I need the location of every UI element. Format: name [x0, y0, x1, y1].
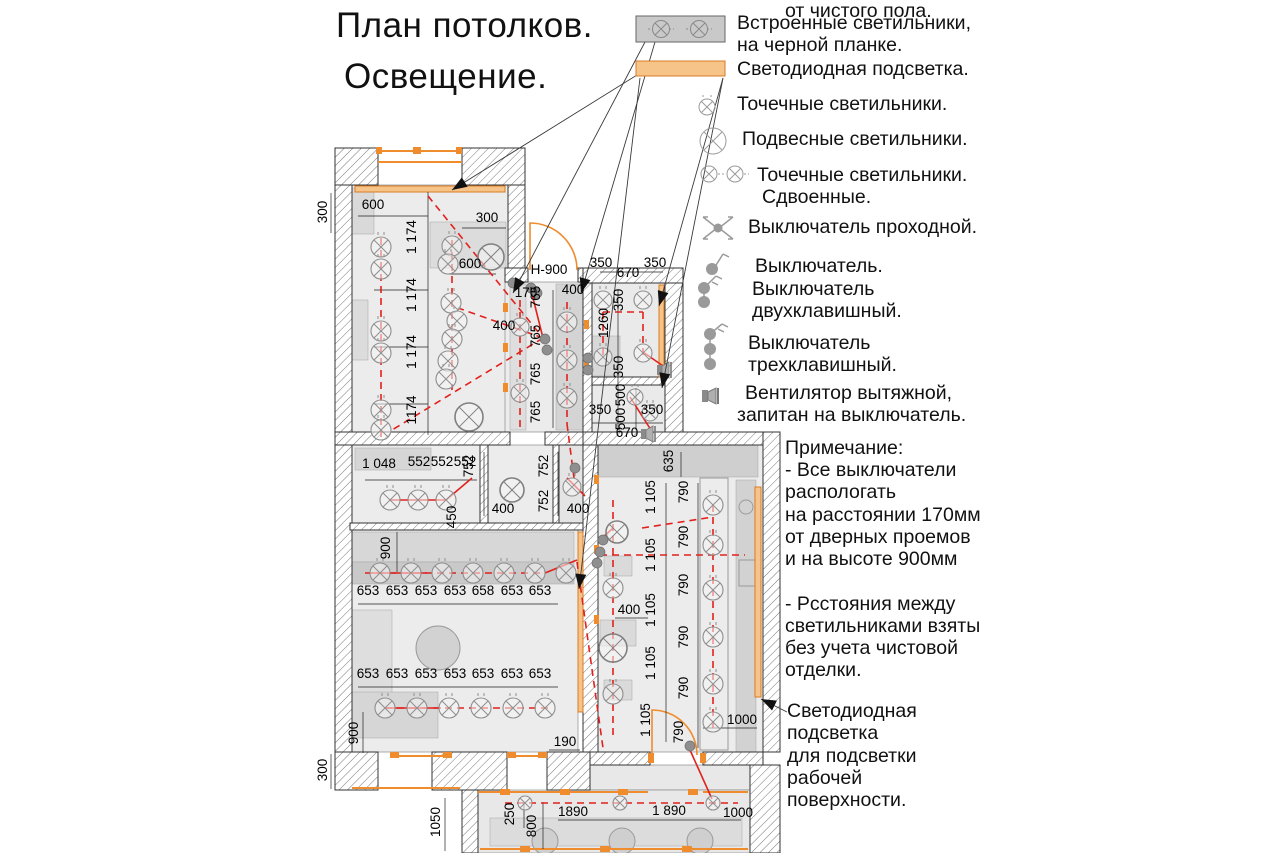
dimension-label: 250: [502, 803, 517, 826]
dimension-label: 190: [554, 734, 577, 749]
dimension-label: 653: [501, 583, 524, 598]
legend-label: Выключатель.: [755, 255, 883, 277]
dimension-label: 765: [528, 325, 543, 348]
dimension-label: 350: [611, 289, 626, 312]
wall-segment: [462, 148, 525, 185]
dimension-label: 653: [415, 666, 438, 681]
dimension-label: 800: [524, 815, 539, 838]
note-line: на расстоянии 170мм: [785, 504, 981, 526]
note-line: - Все выключатели: [785, 459, 956, 481]
dimension-label: 653: [444, 583, 467, 598]
dimension-label: 653: [501, 666, 524, 681]
wall-segment: [590, 752, 650, 765]
switch-three-icon: [700, 322, 734, 376]
note-line: светильниками взяты: [785, 615, 980, 637]
legend-label: Точечные светильники.: [757, 164, 967, 186]
dimension-label: 900: [378, 537, 393, 560]
dimension-label: H-900: [531, 262, 568, 277]
wall-segment: [335, 752, 378, 790]
dimension-label: 790: [671, 721, 686, 744]
dimension-label: 1 105: [643, 538, 658, 572]
wall-connector-tick: [376, 147, 382, 154]
wall-segment: [750, 765, 780, 853]
fan-symbol: [641, 429, 646, 439]
led-strip: [755, 487, 761, 697]
wall-segment: [583, 432, 780, 445]
wall-connector-tick: [682, 846, 692, 852]
legend-label: Выключатель проходной.: [748, 216, 977, 238]
pendant-light-icon: [698, 126, 728, 156]
ceiling-lighting-plan-page: 3006003006001 1741 1741 1741174H-9001704…: [0, 0, 1280, 853]
dimension-label: 653: [529, 666, 552, 681]
dimension-label: 300: [476, 210, 499, 225]
annotation-line: для подсветки: [787, 745, 917, 767]
dimension-label: 1 105: [643, 593, 658, 627]
dimension-label: 400: [492, 501, 515, 516]
dimension-label: 653: [386, 666, 409, 681]
wall-segment: [508, 185, 525, 268]
wall-connector-tick: [594, 615, 599, 624]
wall-connector-tick: [560, 789, 570, 795]
note-line: - Рсстояния между: [785, 593, 955, 615]
dimension-label: 653: [444, 666, 467, 681]
note-line: от чистого пола.: [785, 0, 932, 22]
dimension-label: 552: [408, 454, 431, 469]
wall-segment: [335, 445, 352, 752]
dimension-label: 300: [315, 201, 330, 224]
dimension-label: 1000: [723, 805, 753, 820]
dimension-label: 400: [493, 318, 516, 333]
dimension-label: 790: [676, 677, 691, 700]
legend-label: Выключатель: [748, 332, 870, 354]
wall-segment: [335, 185, 352, 432]
legend-label: Выключатель: [752, 278, 874, 300]
legend-label: Светодиодная подсветка.: [737, 58, 969, 80]
dimension-label: 400: [567, 501, 590, 516]
dimension-label: 600: [362, 197, 385, 212]
dimension-label: 790: [676, 526, 691, 549]
annotation-line: рабочей: [787, 767, 862, 789]
dimension-label: 1 174: [404, 335, 419, 369]
dimension-label: 1 105: [643, 480, 658, 514]
dimension-label: 790: [676, 481, 691, 504]
dimension-label: 670: [616, 425, 639, 440]
switch-symbol: [595, 547, 605, 557]
wall-connector-tick: [500, 789, 510, 795]
wall-connector-tick: [584, 320, 589, 329]
switch-two-icon: [694, 274, 728, 314]
dimension-label: 350: [641, 402, 664, 417]
wall-connector-tick: [443, 752, 452, 758]
switch-symbol: [570, 463, 580, 473]
switch-symbol: [583, 353, 593, 363]
dimension-label: 658: [472, 583, 495, 598]
legend-label: Точечные светильники.: [737, 93, 947, 115]
legend-label: запитан на выключатель.: [737, 404, 966, 426]
wall-segment: [545, 432, 583, 445]
switch-pass-icon: [700, 213, 736, 243]
annotation-line: Светодиодная: [787, 700, 917, 722]
dimension-label: 653: [529, 583, 552, 598]
note-line: распологать: [785, 481, 896, 503]
dimension-label: 790: [676, 626, 691, 649]
dimension-label: 350: [644, 255, 667, 270]
wall-segment: [592, 377, 665, 385]
wall-connector-tick: [507, 752, 516, 758]
dimension-label: 350: [611, 356, 626, 379]
switch-symbol: [685, 741, 695, 751]
dimension-label: 790: [676, 574, 691, 597]
note-line: Примечание:: [785, 437, 903, 459]
legend-label: Подвесные светильники.: [742, 128, 968, 150]
note-line: и на высоте 900мм: [785, 548, 957, 570]
dimension-label: 300: [315, 759, 330, 782]
dimension-label: 1000: [727, 712, 757, 727]
dimension-label: 1 048: [362, 456, 396, 471]
dimension-label: 552: [431, 454, 454, 469]
dimension-label: 1 105: [643, 646, 658, 680]
dimension-label: 1260: [596, 308, 611, 338]
legend-label: на черной планке.: [737, 34, 902, 56]
dimension-label: 653: [472, 666, 495, 681]
note-line: отделки.: [785, 659, 862, 681]
dimension-label: 450: [444, 506, 459, 529]
wall-connector-tick: [503, 303, 508, 312]
legend-label: Вентилятор вытяжной,: [745, 382, 952, 404]
led-strip-icon: [635, 60, 727, 78]
dimension-label: 765: [528, 363, 543, 386]
switch-symbol: [592, 558, 602, 568]
dimension-label: 653: [415, 583, 438, 598]
dimension-label: 600: [459, 256, 482, 271]
wall-connector-tick: [503, 343, 508, 352]
dimension-label: 350: [590, 255, 613, 270]
wall-segment: [335, 148, 378, 185]
dimension-label: 653: [357, 666, 380, 681]
wall-segment: [335, 432, 510, 445]
dimension-label: 765: [528, 401, 543, 424]
wall-connector-tick: [648, 753, 654, 763]
annotation-line: подсветка: [787, 722, 878, 744]
dimension-label: 1 105: [638, 703, 653, 737]
wall-connector-tick: [456, 147, 462, 154]
page-subtitle: Освещение.: [344, 57, 547, 97]
dimension-label: 635: [661, 450, 676, 473]
wall-connector-tick: [688, 789, 698, 795]
page-title: План потолков.: [336, 6, 593, 46]
wall-connector-tick: [413, 147, 421, 154]
wall-connector-tick: [390, 752, 399, 758]
dimension-label: 1890: [558, 804, 588, 819]
dimension-label: 350: [589, 402, 612, 417]
switch-symbol: [583, 365, 593, 375]
note-line: без учета чистовой: [785, 637, 958, 659]
wall-segment: [547, 752, 590, 790]
room-floor: [590, 765, 750, 790]
furniture: [352, 692, 438, 738]
switch-symbol: [598, 535, 608, 545]
legend-label: трехклавишный.: [748, 354, 897, 376]
led-strip: [355, 186, 505, 192]
dimension-label: 752: [536, 490, 551, 513]
wall-segment: [350, 523, 583, 530]
furniture: [352, 300, 368, 360]
dimension-label: 552: [454, 454, 477, 469]
annotation-line: поверхности.: [787, 789, 906, 811]
furniture-circle: [416, 626, 460, 670]
switch-symbol: [542, 345, 552, 355]
exhaust-fan-icon: [700, 384, 730, 408]
wall-segment: [462, 790, 478, 853]
dimension-label: 670: [617, 265, 640, 280]
wall-connector-tick: [538, 752, 547, 758]
wall-connector-tick: [618, 789, 628, 795]
floor-plan: 3006003006001 1741 1741 1741174H-9001704…: [0, 0, 1280, 853]
dimension-label: 400: [618, 602, 641, 617]
dimension-label: 653: [357, 583, 380, 598]
wall-connector-tick: [503, 383, 508, 392]
switch-single-icon: [703, 248, 733, 276]
dimension-label: 400: [562, 282, 585, 297]
dimension-label: 500: [613, 384, 628, 407]
wall-connector-tick: [700, 753, 706, 763]
furniture: [604, 556, 632, 576]
dimension-label: 765: [528, 286, 543, 309]
dimension-label: 752: [536, 455, 551, 478]
furniture: [598, 445, 758, 477]
dimension-label: 1174: [404, 395, 419, 425]
dimension-label: 1 174: [404, 220, 419, 254]
spot-light-icon: [696, 92, 720, 118]
dimension-label: 1050: [428, 807, 443, 837]
legend-label: двухклавишный.: [752, 300, 902, 322]
spot-double-icon: [698, 163, 750, 185]
dimension-label: 1 890: [652, 803, 686, 818]
dimension-label: 900: [346, 722, 361, 745]
legend-label: Сдвоенные.: [762, 186, 871, 208]
recessed-track-icon: [635, 15, 727, 45]
wall-connector-tick: [600, 846, 610, 852]
note-line: от дверных проемов: [785, 526, 971, 548]
dimension-label: 1 174: [404, 278, 419, 312]
wall-connector-tick: [594, 475, 599, 484]
wall-segment: [703, 752, 763, 765]
wall-connector-tick: [520, 846, 530, 852]
dimension-label: 653: [386, 583, 409, 598]
